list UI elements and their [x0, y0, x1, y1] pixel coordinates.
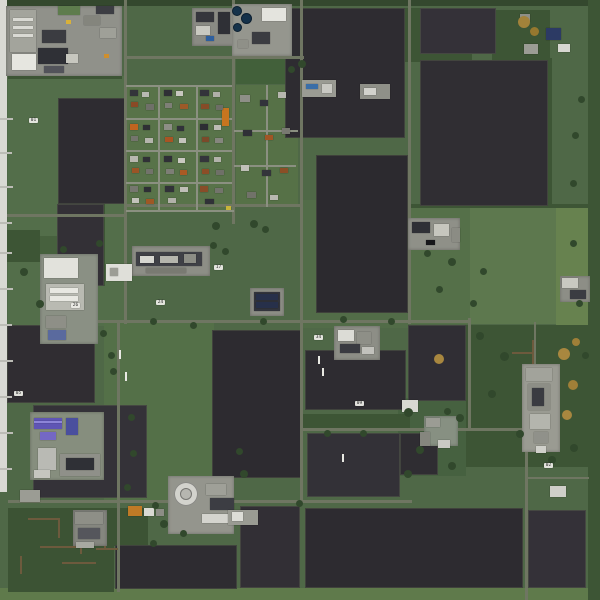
- tree-dot: [36, 300, 44, 308]
- building: [110, 268, 118, 276]
- field: [420, 8, 496, 54]
- building: [66, 54, 78, 63]
- store-building: [34, 421, 62, 423]
- house: [202, 137, 209, 142]
- building: [238, 40, 248, 48]
- house: [216, 105, 223, 110]
- tree-dot: [570, 180, 577, 187]
- building: [550, 486, 566, 497]
- dirt-path: [58, 520, 60, 538]
- tree-dot: [582, 352, 589, 359]
- building: [252, 32, 270, 44]
- dirt-path: [532, 340, 534, 366]
- building: [10, 10, 36, 52]
- building: [562, 278, 578, 288]
- tree-dot: [570, 240, 577, 247]
- pier-tick: [0, 222, 12, 224]
- house: [200, 124, 208, 130]
- building: [420, 432, 430, 446]
- house: [200, 90, 209, 96]
- field-number-marker: 17: [214, 265, 223, 270]
- building: [13, 18, 33, 21]
- tree-dot: [476, 332, 484, 340]
- dirt-path: [62, 562, 96, 564]
- tree-dot: [456, 414, 464, 422]
- village-street: [126, 85, 232, 87]
- house: [168, 198, 176, 203]
- tree-dot: [578, 96, 585, 103]
- solar-panel: [256, 294, 278, 300]
- dirt-path: [28, 518, 60, 520]
- building: [338, 330, 354, 341]
- building: [58, 6, 80, 15]
- slurry-lagoon: [232, 6, 242, 16]
- autumn-tree: [434, 354, 444, 364]
- pier-tick: [0, 186, 13, 188]
- field-number-marker: 09: [355, 401, 364, 406]
- tree-dot: [448, 258, 456, 266]
- field: [58, 98, 126, 204]
- field: [285, 8, 405, 138]
- house: [205, 199, 214, 204]
- store-building: [66, 418, 78, 435]
- road-segment: [468, 318, 471, 430]
- house: [130, 90, 138, 96]
- building: [50, 288, 78, 293]
- tree-dot: [212, 222, 220, 230]
- field: [307, 433, 400, 497]
- building: [452, 228, 460, 242]
- field: [305, 508, 523, 588]
- field: [420, 60, 548, 206]
- house: [262, 170, 271, 176]
- tree-dot: [388, 318, 395, 325]
- building: [76, 542, 94, 548]
- road-segment: [408, 0, 411, 324]
- tree-dot: [416, 446, 424, 454]
- house: [165, 103, 172, 108]
- tree-dot: [130, 450, 137, 457]
- house: [180, 170, 187, 175]
- village-street: [126, 118, 232, 120]
- tree-dot: [470, 300, 477, 307]
- dirt-path: [96, 548, 118, 550]
- road-segment: [124, 204, 302, 207]
- field-number-marker: 02: [544, 463, 553, 468]
- building: [50, 296, 78, 301]
- building: [146, 268, 186, 273]
- house: [216, 170, 224, 175]
- field: [212, 330, 302, 478]
- pier-tick: [0, 396, 12, 398]
- field: [316, 155, 408, 313]
- tree-dot: [424, 250, 431, 257]
- house: [164, 90, 172, 96]
- meadow-east: [470, 206, 556, 324]
- village-street: [126, 210, 234, 212]
- building: [34, 470, 50, 478]
- hedgerow: [8, 76, 122, 79]
- autumn-tree: [572, 338, 580, 346]
- tree-dot: [222, 248, 229, 255]
- house: [180, 104, 188, 109]
- house: [146, 199, 154, 204]
- tree-dot: [572, 132, 579, 139]
- slurry-lagoon: [241, 13, 252, 24]
- tree-dot: [262, 226, 269, 233]
- tree-dot: [236, 448, 243, 455]
- tree-dot: [448, 462, 456, 470]
- tree-dot: [288, 66, 295, 73]
- house: [143, 125, 150, 130]
- wind-turbine: [322, 368, 324, 376]
- road-segment: [525, 477, 589, 479]
- building: [44, 66, 64, 73]
- tree-dot: [298, 60, 306, 68]
- house: [165, 137, 173, 142]
- building: [48, 330, 66, 340]
- village-street: [126, 182, 232, 184]
- field: [528, 510, 586, 588]
- house: [143, 157, 150, 162]
- building: [426, 418, 440, 427]
- pier-tick: [0, 252, 12, 254]
- village-street: [158, 85, 160, 212]
- building: [546, 28, 561, 40]
- field: [115, 545, 237, 589]
- tree-dot: [480, 268, 487, 275]
- building: [340, 344, 360, 353]
- machine: [66, 20, 71, 24]
- building: [196, 12, 214, 22]
- tree-dot: [404, 470, 412, 478]
- building: [218, 12, 230, 34]
- road-segment: [117, 322, 120, 592]
- wind-turbine: [318, 356, 320, 364]
- building: [38, 48, 68, 64]
- building: [13, 26, 33, 29]
- house: [146, 104, 154, 110]
- house: [144, 187, 151, 192]
- building: [46, 316, 66, 328]
- pier-tick: [0, 288, 13, 290]
- house: [130, 156, 138, 162]
- warehouse: [44, 258, 78, 278]
- house: [132, 198, 139, 203]
- field-number-marker: 01: [29, 118, 38, 123]
- building: [558, 44, 570, 52]
- road-segment: [300, 428, 528, 431]
- tree-dot: [190, 322, 197, 329]
- house: [201, 104, 209, 109]
- house: [176, 91, 183, 96]
- building: [140, 256, 154, 263]
- field-number-marker: 26: [71, 303, 80, 308]
- machine: [104, 54, 109, 58]
- building: [530, 414, 550, 429]
- tree-dot: [404, 408, 413, 417]
- building: [362, 347, 374, 354]
- building: [524, 44, 538, 54]
- building: [75, 512, 103, 524]
- building: [42, 30, 66, 43]
- village-street: [126, 150, 232, 152]
- hedgerow: [548, 58, 552, 208]
- house: [145, 138, 153, 143]
- building: [210, 498, 234, 510]
- building: [78, 528, 100, 539]
- tree-dot: [296, 500, 303, 507]
- pier-tick: [0, 324, 12, 326]
- autumn-tree: [558, 348, 570, 360]
- house: [132, 168, 139, 173]
- building: [532, 388, 544, 406]
- tree-dot: [210, 242, 217, 249]
- tree-dot: [108, 352, 115, 359]
- house: [215, 188, 223, 193]
- building: [206, 484, 226, 495]
- vehicle: [426, 240, 435, 245]
- building: [357, 332, 371, 344]
- store-building: [40, 432, 56, 440]
- tree-dot: [260, 318, 267, 325]
- building: [364, 88, 376, 95]
- building: [438, 440, 450, 448]
- road-segment: [525, 428, 528, 600]
- dirt-path: [512, 352, 534, 354]
- building: [202, 514, 230, 523]
- building: [196, 26, 210, 35]
- tree-dot: [240, 470, 248, 478]
- house: [146, 169, 153, 174]
- field-number-marker: 34: [314, 335, 323, 340]
- house: [260, 100, 268, 106]
- autumn-tree: [518, 16, 530, 28]
- tree-dot: [324, 430, 331, 437]
- building: [160, 256, 178, 263]
- building: [412, 222, 430, 233]
- tree-dot: [444, 408, 451, 415]
- field-number-marker: 24: [156, 300, 165, 305]
- autumn-tree: [562, 410, 572, 420]
- dirt-path: [20, 556, 22, 574]
- meadow-right-strip: [556, 206, 588, 334]
- tree-dot: [150, 318, 157, 325]
- tree-dot: [20, 268, 28, 276]
- house: [177, 126, 184, 131]
- house: [278, 92, 286, 98]
- building: [206, 36, 214, 41]
- solar-panel: [256, 302, 278, 308]
- building: [100, 28, 116, 38]
- house: [178, 158, 185, 163]
- road-segment: [124, 56, 304, 59]
- house: [265, 135, 273, 140]
- tree-dot: [128, 414, 135, 421]
- building: [96, 6, 114, 14]
- building: [20, 490, 40, 502]
- tree-dot: [160, 520, 168, 528]
- house: [179, 138, 186, 143]
- tree-dot: [436, 286, 443, 293]
- house: [240, 95, 250, 102]
- aerial-map-canvas[interactable]: 0126241734090502: [0, 0, 600, 600]
- building: [184, 254, 196, 263]
- building: [66, 458, 94, 470]
- house: [200, 156, 209, 162]
- house: [202, 169, 209, 174]
- machine: [226, 206, 231, 210]
- house: [270, 195, 278, 200]
- house: [243, 130, 252, 136]
- house: [166, 169, 174, 174]
- wind-turbine: [125, 372, 127, 381]
- building: [526, 368, 552, 381]
- house: [131, 102, 138, 107]
- building: [144, 508, 154, 516]
- building: [262, 8, 286, 21]
- house: [213, 92, 220, 97]
- tree-dot: [488, 390, 496, 398]
- wind-turbine: [342, 454, 344, 462]
- autumn-tree: [530, 27, 539, 36]
- forest-southwest: [8, 544, 114, 592]
- house: [214, 157, 221, 162]
- tree-dot: [180, 530, 187, 537]
- house: [241, 165, 249, 171]
- store-building: [34, 418, 62, 429]
- forest-patch: [2, 230, 40, 262]
- tree-dot: [576, 300, 583, 307]
- building: [570, 290, 586, 299]
- house: [215, 138, 223, 143]
- tree-dot: [100, 330, 107, 337]
- tree-dot: [516, 430, 524, 438]
- wind-turbine: [119, 350, 121, 359]
- tree-dot: [124, 484, 131, 491]
- pier-tick: [0, 152, 12, 154]
- building: [12, 54, 36, 70]
- pier-tick: [0, 118, 13, 120]
- tree-dot: [570, 444, 578, 452]
- house: [214, 125, 221, 130]
- house: [200, 186, 208, 192]
- house: [142, 92, 149, 97]
- tree-dot: [96, 240, 103, 247]
- pier-tick: [0, 360, 13, 362]
- building: [156, 509, 164, 516]
- field-number-marker: 05: [14, 391, 23, 396]
- autumn-tree: [568, 380, 578, 390]
- house: [164, 124, 172, 130]
- building: [38, 448, 56, 470]
- house: [131, 136, 138, 141]
- house: [180, 187, 188, 192]
- house: [222, 108, 229, 126]
- slurry-lagoon: [233, 23, 242, 32]
- building: [128, 506, 142, 516]
- road-segment: [300, 0, 303, 502]
- tree-dot: [360, 430, 367, 437]
- house: [130, 186, 138, 192]
- tree-dot: [340, 316, 347, 323]
- road-segment: [0, 214, 126, 217]
- building: [534, 432, 548, 443]
- tree-dot: [150, 540, 157, 547]
- building: [536, 446, 546, 453]
- building: [434, 224, 449, 236]
- house: [130, 124, 138, 130]
- house: [164, 156, 172, 162]
- pier-tick: [0, 432, 13, 434]
- building: [322, 84, 332, 93]
- tree-dot: [60, 246, 67, 253]
- house: [282, 128, 290, 134]
- house: [247, 192, 256, 198]
- building: [232, 512, 243, 521]
- tree-dot: [110, 368, 117, 375]
- building: [306, 84, 318, 89]
- building: [84, 16, 100, 25]
- building: [13, 34, 33, 37]
- house: [165, 186, 174, 192]
- tree-dot: [250, 220, 258, 228]
- tree-dot: [500, 352, 509, 361]
- house: [280, 168, 288, 173]
- village-street: [196, 85, 198, 212]
- biogas-tank-inner: [180, 488, 192, 500]
- pier-tick: [0, 468, 12, 470]
- tree-dot: [152, 502, 159, 509]
